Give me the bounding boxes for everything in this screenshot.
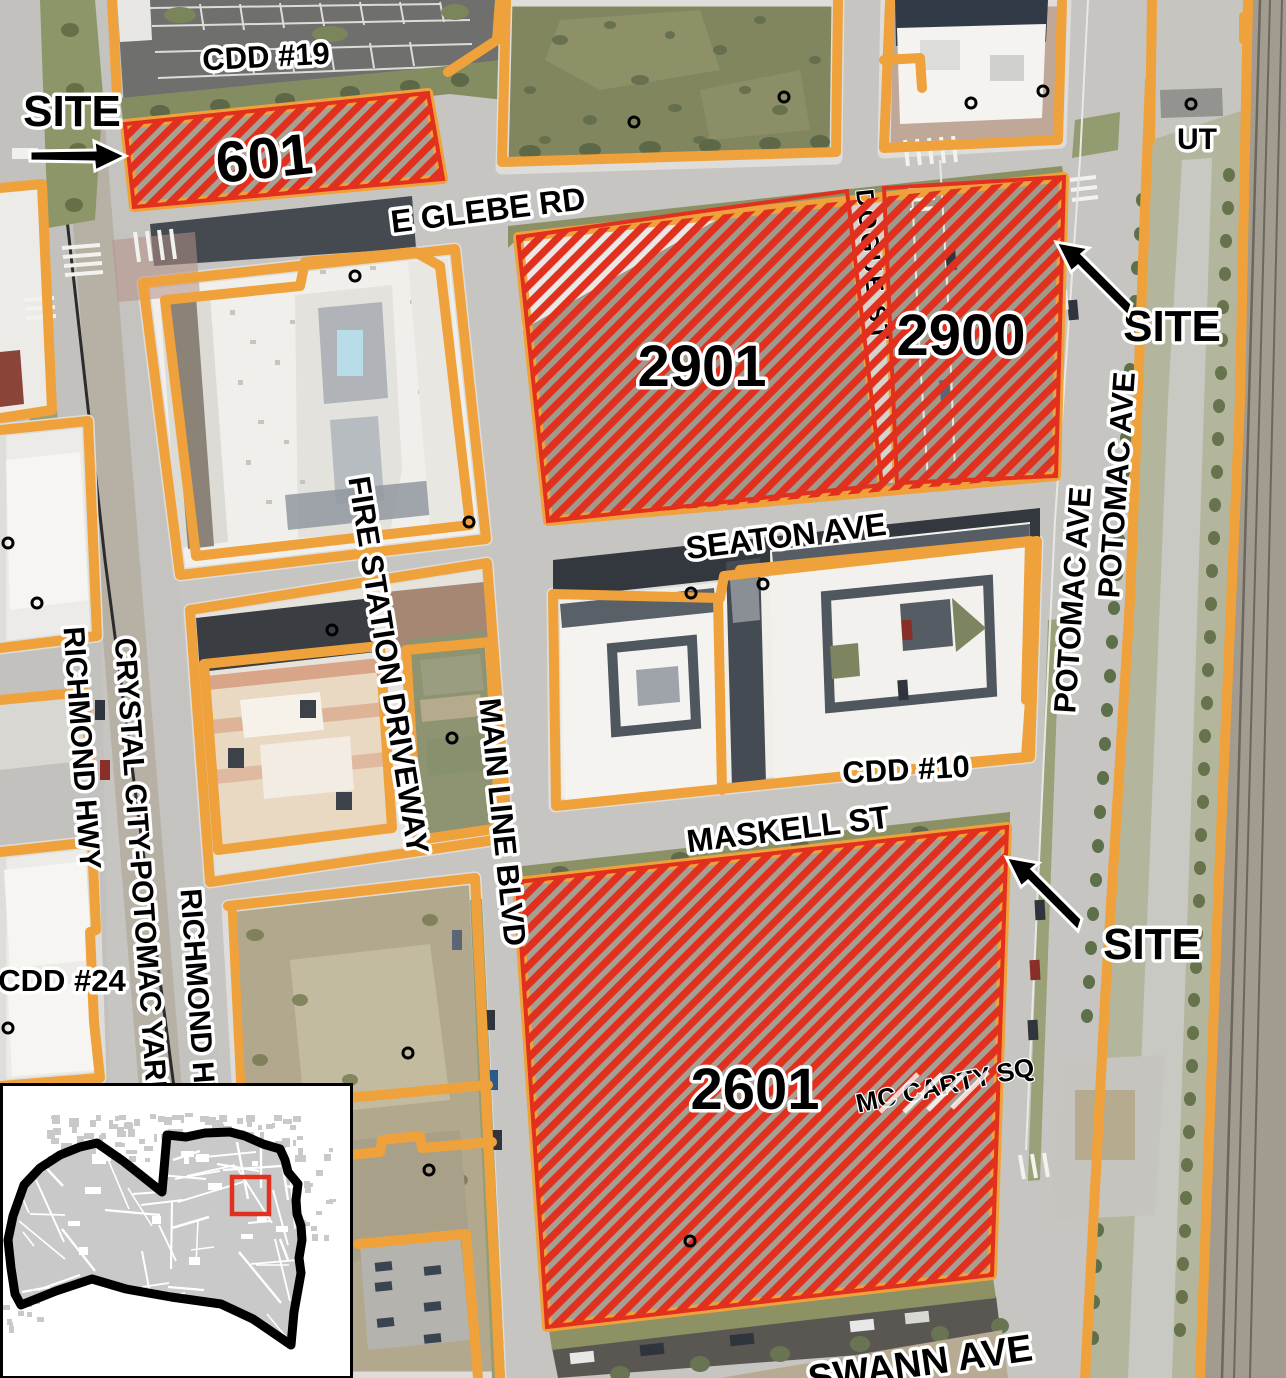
svg-text:CDD #10: CDD #10 xyxy=(841,749,970,791)
svg-text:2900: 2900 xyxy=(896,303,1025,368)
svg-text:SITE: SITE xyxy=(1123,302,1221,351)
svg-text:2901: 2901 xyxy=(637,334,766,399)
svg-text:SITE: SITE xyxy=(1103,920,1201,969)
svg-text:CDD #24: CDD #24 xyxy=(0,963,127,998)
svg-text:601: 601 xyxy=(213,121,316,196)
svg-text:UT: UT xyxy=(1177,123,1217,156)
svg-text:2601: 2601 xyxy=(690,1057,819,1122)
svg-text:SITE: SITE xyxy=(23,87,121,136)
svg-text:CDD #19: CDD #19 xyxy=(201,36,330,78)
